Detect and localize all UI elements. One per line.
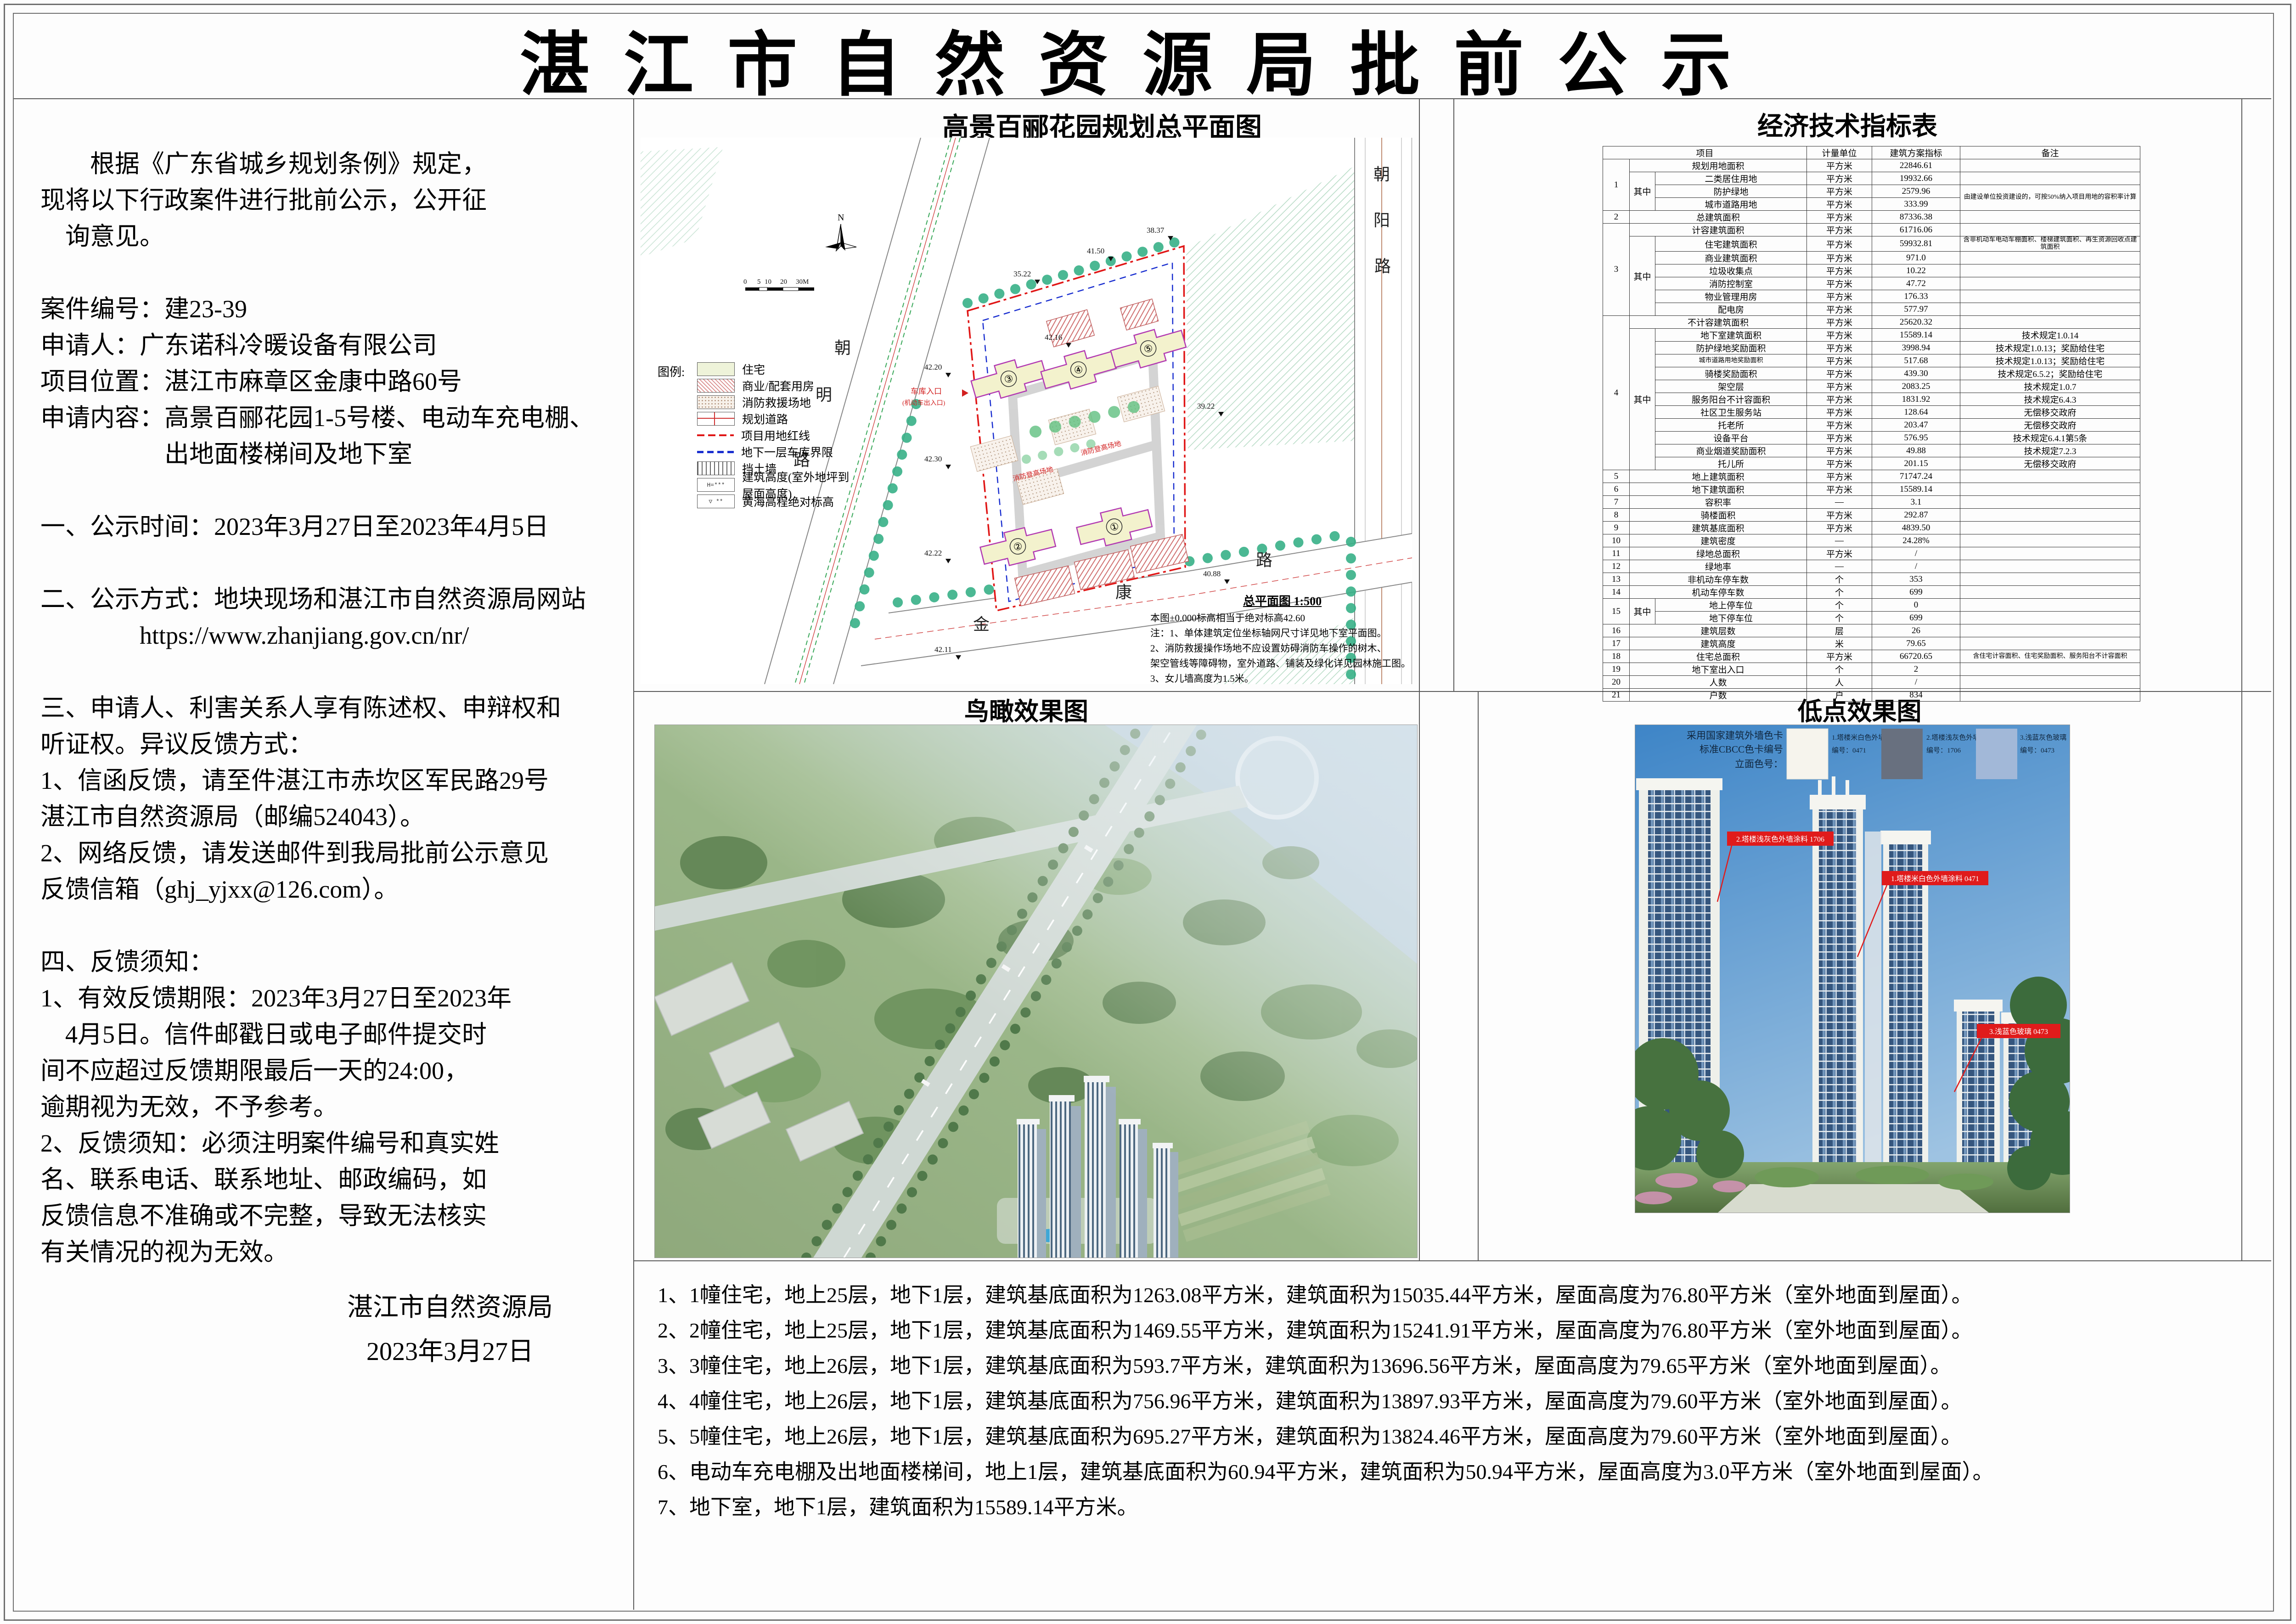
legend-item-label: 项目用地红线 [741,427,810,444]
table-row: 20人数人/ [1603,676,2140,689]
notice-line: 逾期视为无效，不予参考。 [40,1089,628,1125]
legend-item: 项目用地红线 [697,427,850,444]
table-row: 防护绿地奖励面积平方米3998.94技术规定1.0.13；奖励给住宅 [1603,342,2140,354]
divider-left-panel [633,99,634,1610]
public-notice-board: 湛 江 市 自 然 资 源 局 批 前 公 示 根据《广东省城乡规划条例》规定，… [0,0,2296,1624]
building-note-line: 3、3幢住宅，地上26层，地下1层，建筑基底面积为593.7平方米，建筑面积为1… [658,1348,2274,1383]
table-row: 6地下建筑面积平方米15589.14 [1603,483,2140,496]
road-chaoyang-char1: 朝 [1373,165,1390,184]
building-note-line: 2、2幢住宅，地上25层，地下1层，建筑基底面积为1469.55平方米，建筑面积… [658,1313,2274,1348]
table-row: 其中地下室建筑面积平方米15589.14技术规定1.0.14 [1603,329,2140,342]
table-row: 社区卫生服务站平方米128.64无偿移交政府 [1603,406,2140,419]
indicators-table: 项目 计量单位 建筑方案指标 备注 1规划用地面积平方米22846.61其中二类… [1603,146,2140,702]
table-row: 11绿地总面积平方米/ [1603,547,2140,560]
legend-item: 住宅 [697,361,850,377]
table-row: 4不计容建筑面积平方米25620.32 [1603,316,2140,329]
road-chaoming-char1: 朝 [834,339,851,357]
notice-line: 听证权。异议反馈方式： [40,726,628,763]
table-row: 架空层平方米2083.25技术规定1.0.7 [1603,380,2140,393]
aerial-view-title: 鸟瞰效果图 [634,691,1419,727]
retaining-wall-icon [697,461,735,475]
table-row: 3计容建筑面积平方米61716.06 [1603,224,2140,236]
legend-item-label: 地下一层车库界限 [741,444,833,460]
site-plan-notes: 总平面图 1:500 本图±0.000标高相当于绝对标高42.60 注：1、单体… [1150,594,1414,686]
svg-text:41.50: 41.50 [1087,247,1104,255]
notice-line: 案件编号：建23-39 [40,291,628,327]
notice-text: 根据《广东省城乡规划条例》规定，现将以下行政案件进行批前公示，公开征 询意见。案… [40,146,628,1270]
table-row: 其中住宅建筑面积平方米59932.81含非机动车电动车棚面积、楼梯建筑面积、再生… [1603,236,2140,252]
svg-text:42.20: 42.20 [924,363,942,371]
table-row: 托老所平方米203.47无偿移交政府 [1603,419,2140,432]
legend-item: ▽ **黄海高程绝对标高 [697,493,850,510]
svg-text:38.37: 38.37 [1147,226,1165,235]
svg-text:40.88: 40.88 [1203,569,1221,578]
notice-line: 反馈信箱（ghj_yjxx@126.com）。 [40,871,628,908]
table-row: 10建筑密度—24.28% [1603,534,2140,547]
svg-text:39.22: 39.22 [1197,402,1215,410]
notice-line: 有关情况的视为无效。 [40,1234,628,1270]
legend-title: 图例: [658,363,685,380]
col-note: 备注 [1960,146,2140,159]
svg-text:42.22: 42.22 [924,549,942,557]
table-row: 服务阳台不计容面积平方米1831.92技术规定6.4.3 [1603,393,2140,406]
notice-line: 一、公示时间：2023年3月27日至2023年4月5日 [40,509,628,545]
notice-line: 1、信函反馈，请至件湛江市赤坎区军民路29号 [40,763,628,799]
table-row: 5地上建筑面积平方米71747.24 [1603,470,2140,483]
road-chaoyang-char2: 阳 [1373,211,1390,230]
garage-blue-dash-icon [697,451,734,453]
road-jinkang-char1: 金 [973,615,990,634]
road-chaoyang-char3: 路 [1374,257,1391,275]
table-row: 13非机动车停车数个353 [1603,573,2140,586]
drawing-title: 总平面图 1:500 [1150,594,1414,609]
building-notes: 1、1幢住宅，地上25层，地下1层，建筑基底面积为1263.08平方米，建筑面积… [658,1277,2274,1525]
table-row: 托儿所平方米201.15无偿移交政府 [1603,457,2140,470]
notice-line: 2、网络反馈，请发送邮件到我局批前公示意见 [40,835,628,871]
table-row: 1规划用地面积平方米22846.61 [1603,159,2140,172]
planned-road-icon [697,412,735,426]
legend-item: H=***建筑高度(室外地坪到屋面高度) [697,477,850,493]
notice-line: https://www.zhanjiang.gov.cn/nr/ [40,618,628,654]
residential-fill-icon [697,362,735,376]
notice-line: 根据《广东省城乡规划条例》规定， [40,146,628,182]
notice-line: 名、联系电话、联系地址、邮政编码，如 [40,1162,628,1198]
swatch-offwhite-code: 编号：0471 [1832,747,1866,754]
building-note-line: 5、5幢住宅，地上26层，地下1层，建筑基底面积为695.27平方米，建筑面积为… [658,1419,2274,1454]
table-row: 2总建筑面积平方米87336.38 [1603,211,2140,224]
notice-line [40,255,628,291]
notice-line: 4月5日。信件邮戳日或电子邮件提交时 [40,1017,628,1053]
col-item: 项目 [1603,146,1807,159]
table-row: 21户数户834 [1603,689,2140,702]
table-row: 9建筑基底面积平方米4839.50 [1603,522,2140,534]
garage-entry-label: 车库入口 [911,387,942,396]
legend-item: 地下一层车库界限 [697,444,850,460]
red-boundary-line-icon [697,434,734,436]
col-value: 建筑方案指标 [1872,146,1960,159]
legend-item-label: 住宅 [742,361,765,377]
road-jinkang-char3: 路 [1256,551,1272,569]
datum-note: 本图±0.000标高相当于绝对标高42.60 [1150,611,1414,626]
table-row: 14机动车停车数个699 [1603,586,2140,599]
garage-entry-sublabel: (机动车出入口) [902,399,945,407]
legend-item: 规划道路 [697,410,850,427]
page-title: 湛 江 市 自 然 资 源 局 批 前 公 示 [14,19,2245,98]
table-row: 防护绿地平方米2579.96由建设单位投资建设的，可按50%纳入项目用地的容积率… [1603,185,2140,198]
notice-line: 反馈信息不准确或不完整，导致无法核实 [40,1198,628,1234]
svg-text:0: 0 [743,278,747,286]
legend-intro-2: 标准CBCC色卡编号 [1699,744,1783,755]
swatch-blue-label: 3.浅蓝灰色玻璃 [2020,734,2066,742]
svg-text:35.22: 35.22 [1013,270,1031,278]
building-note-line: 6、电动车充电棚及出地面楼梯间，地上1层，建筑基底面积为60.94平方米，建筑面… [658,1454,2274,1489]
svg-text:20: 20 [780,278,787,286]
notice-line: 二、公示方式：地块现场和湛江市自然资源局网站 [40,581,628,618]
table-row: 15其中地上停车位个0 [1603,599,2140,612]
haze-overlay [655,725,1417,1258]
building-note-line: 4、4幢住宅，地上26层，地下1层，建筑基底面积为756.96平方米，建筑面积为… [658,1383,2274,1419]
divider-mid-right-a [1419,99,1420,1261]
divider-notes-top [634,1260,2271,1261]
table-row: 地下停车位个699 [1603,612,2140,624]
callout-blue-glass: 3.浅蓝色玻璃 0473 [1989,1028,2048,1036]
notice-line: 申请内容：高景百郦花园1-5号楼、电动车充电棚、 [40,400,628,436]
table-row: 商业建筑面积平方米971.0 [1603,252,2140,264]
building-note-line: 1、1幢住宅，地上25层，地下1层，建筑基底面积为1263.08平方米，建筑面积… [658,1277,2274,1313]
notice-line [40,472,628,509]
legend-item-label: 商业/配套用房 [742,377,814,394]
swatch-blue [1976,729,2017,779]
table-header-row: 项目 计量单位 建筑方案指标 备注 [1603,146,2140,159]
notice-line: 出地面楼梯间及地下室 [40,436,628,472]
divider-mid-right-b [1453,99,1454,691]
callout-white-paint: 1.塔楼米白色外墙涂料 0471 [1891,875,1979,883]
notice-line: 湛江市自然资源局（邮编524043）。 [40,799,628,835]
legend-intro-1: 采用国家建筑外墙色卡 [1687,730,1783,741]
swatch-offwhite [1787,729,1828,779]
callout-gray-paint: 2.塔楼浅灰色外墙涂料 1706 [1736,835,1824,843]
svg-text:42.30: 42.30 [924,455,942,463]
table-row: 12绿地率—/ [1603,560,2140,573]
table-row: 商业烟道奖励面积平方米49.88技术规定7.2.3 [1603,444,2140,457]
plan-note-1: 注：1、单体建筑定位坐标轴网尺寸详见地下室平面图。 [1150,626,1414,641]
table-row: 物业管理用房平方米176.33 [1603,290,2140,303]
table-row: 其中二类居住用地平方米19932.66 [1603,172,2140,185]
table-row: 8骑楼面积平方米292.87 [1603,509,2140,522]
tower-center-b [1865,831,1931,1213]
notice-line: 间不应超过反馈期限最后一天的24:00， [40,1053,628,1089]
legend-item-label: 规划道路 [742,410,788,427]
table-row: 17建筑高度米79.65 [1603,637,2140,650]
notice-line: 项目位置：湛江市麻章区金康中路60号 [40,364,628,400]
legend-item: 消防救援场地 [697,394,850,410]
swatch-blue-code: 编号：0473 [2020,747,2054,754]
plan-note-4: 3、女儿墙高度为1.5米。 [1150,671,1414,686]
divider-low-left [1478,691,1479,1261]
svg-text:10: 10 [765,278,771,286]
notice-line: 2、反馈须知：必须注明案件编号和真实姓 [40,1125,628,1162]
notice-line: 申请人：广东诺科冷暖设备有限公司 [40,327,628,364]
notice-line [40,654,628,690]
table-row: 垃圾收集点平方米10.22 [1603,264,2140,277]
notice-line: 现将以下行政案件进行批前公示，公开征 [40,182,628,219]
signature-agency: 湛江市自然资源局 [276,1286,625,1330]
legend-item-label: 消防救援场地 [742,394,811,410]
notice-signature: 湛江市自然资源局 2023年3月27日 [276,1286,625,1374]
table-row: 7容积率—3.1 [1603,496,2140,509]
divider-right-margin [2241,99,2242,1261]
fire-rescue-dots-icon [697,395,735,409]
table-row: 消防控制室平方米47.72 [1603,277,2140,290]
svg-text:42.11: 42.11 [934,645,952,654]
indicators-title: 经济技术指标表 [1453,106,2241,143]
table-row: 骑楼奖励面积平方米439.30技术规定6.5.2；奖励给住宅 [1603,367,2140,380]
elevation-mark-icon: ▽ ** [697,495,735,508]
svg-text:5: 5 [757,278,761,286]
plan-note-2: 2、消防救援操作场地不应设置妨碍消防车操作的树木、 [1150,641,1414,656]
table-row: 19地下室出入口个2 [1603,663,2140,676]
notice-line: 询意见。 [40,219,628,255]
table-row: 16建筑层数层26 [1603,624,2140,637]
notice-line [40,545,628,581]
table-row: 配电房平方米577.97 [1603,303,2140,316]
swatch-gray-code: 编号：1706 [1926,747,1961,754]
plan-note-3: 架空管线等障碍物，室外道路、铺装及绿化详见园林施工图。 [1150,656,1414,671]
svg-text:42.16: 42.16 [1045,333,1062,342]
commercial-hatch-icon [697,379,735,393]
legend-item-label: 黄海高程绝对标高 [742,493,834,510]
table-row: 设备平台平方米576.95技术规定6.4.1第5条 [1603,432,2140,444]
notice-line: 三、申请人、利害关系人享有陈述权、申辩权和 [40,690,628,726]
aerial-rendering [654,725,1418,1258]
lowpoint-rendering: 采用国家建筑外墙色卡 标准CBCC色卡编号 立面色号： 1.塔楼米白色外墙涂料 … [1635,725,2070,1213]
notice-line: 1、有效反馈期限：2023年3月27日至2023年 [40,980,628,1017]
table-row: 18住宅总面积平方米66720.65含住宅计容面积、住宅奖励面积、服务阳台不计容… [1603,650,2140,663]
col-unit: 计量单位 [1807,146,1872,159]
site-plan-legend: 图例: 住宅商业/配套用房消防救援场地规划道路项目用地红线地下一层车库界限挡土墙… [658,361,850,510]
building-height-box-icon: H=*** [697,478,735,492]
signature-date: 2023年3月27日 [276,1330,625,1374]
table-row: 城市道路用地奖励面积平方米517.68技术规定1.0.13；奖励给住宅 [1603,354,2140,367]
legend-rows: 住宅商业/配套用房消防救援场地规划道路项目用地红线地下一层车库界限挡土墙H=**… [658,361,850,510]
building-note-line: 7、地下室，地下1层，建筑面积为15589.14平方米。 [658,1489,2274,1525]
north-label: N [838,213,844,223]
swatch-gray [1881,729,1923,779]
legend-item: 商业/配套用房 [697,377,850,394]
svg-text:30M: 30M [796,278,809,286]
notice-line: 四、反馈须知： [40,944,628,980]
notice-line [40,908,628,944]
legend-intro-3: 立面色号： [1735,759,1783,770]
road-jinkang-char2: 康 [1115,583,1132,601]
